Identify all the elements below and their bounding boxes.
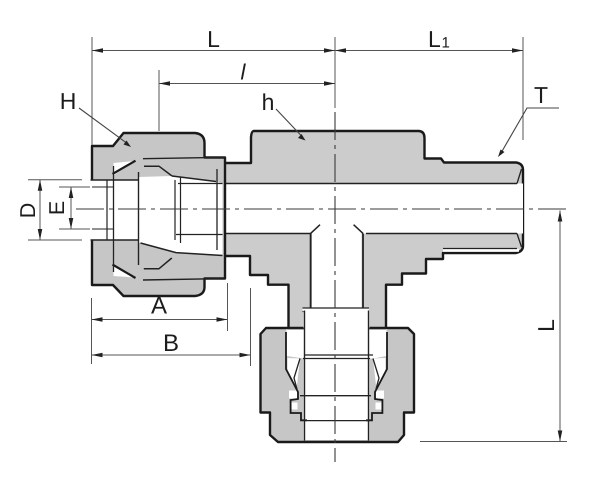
svg-text:E: E (45, 201, 69, 215)
svg-text:H: H (60, 88, 77, 114)
svg-text:L: L (207, 26, 220, 52)
svg-text:L: L (533, 319, 559, 332)
svg-text:A: A (151, 293, 167, 320)
svg-text:D: D (16, 203, 40, 219)
svg-text:h: h (262, 89, 275, 115)
svg-text:1: 1 (442, 35, 450, 52)
svg-text:L: L (428, 26, 441, 52)
svg-text:B: B (163, 330, 179, 357)
svg-text:T: T (534, 82, 548, 108)
